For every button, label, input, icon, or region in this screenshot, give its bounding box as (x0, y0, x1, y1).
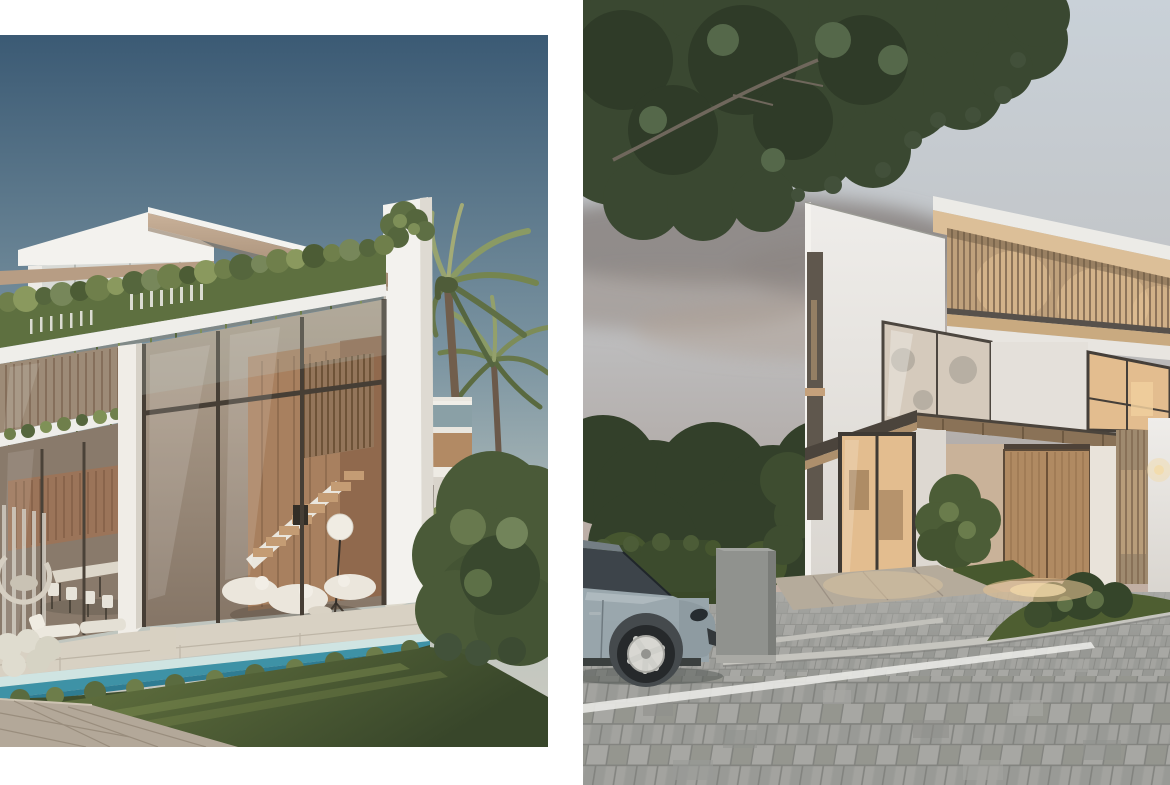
entry-slat-screen (1116, 430, 1150, 584)
double-height-glass (142, 299, 386, 627)
left-villa-render (0, 35, 548, 747)
villa (805, 196, 1170, 612)
door-light-core (1010, 583, 1066, 597)
entry-pier (1090, 446, 1116, 586)
facade-column (118, 343, 142, 650)
villa (0, 197, 435, 650)
wall-lamp (1154, 465, 1164, 475)
right-wall (1148, 418, 1170, 604)
left-render-image (0, 35, 548, 747)
right-render-image (583, 0, 1170, 785)
gate-pillar (716, 548, 776, 663)
entrance-door (1004, 444, 1090, 580)
right-villa-render (583, 0, 1170, 785)
front-wheel (609, 613, 683, 687)
mid-wall (991, 342, 1088, 432)
